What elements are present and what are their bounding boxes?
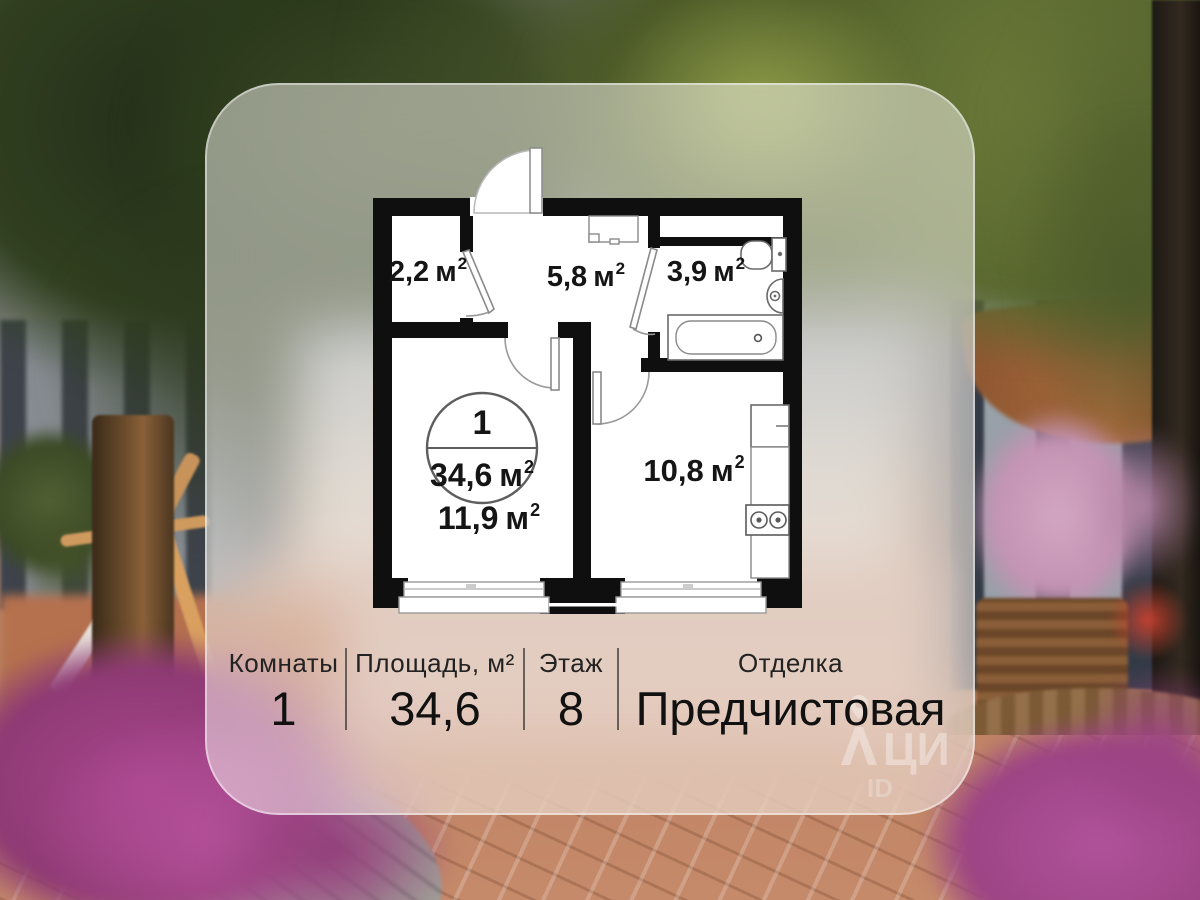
room-area-label-living-room: 11,9м2 [438, 500, 540, 536]
info-value: 1 [270, 681, 296, 737]
info-column-area: Площадь, м² 34,6 [347, 642, 523, 738]
stove-icon [746, 505, 789, 535]
watermark-id-label: ID [867, 773, 893, 803]
badge-total-area: 34,6м2 [430, 457, 534, 493]
info-value: Предчистовая [636, 681, 946, 737]
window-kitchen [616, 582, 766, 613]
bathtub-icon [668, 315, 783, 360]
entrance-door-arc [474, 148, 542, 213]
info-column-rooms: Комнаты 1 [222, 642, 345, 738]
info-value: 34,6 [389, 681, 480, 737]
apartment-info-bar: Комнаты 1 Площадь, м² 34,6 Этаж 8 Отделк… [222, 642, 962, 738]
total-area-badge: 1 34,6м2 [427, 393, 537, 503]
info-column-floor: Этаж 8 [525, 642, 617, 738]
window-living-room [399, 582, 549, 613]
info-label: Площадь, м² [355, 646, 515, 680]
wardrobe-icon [589, 216, 638, 244]
listing-image: ЦИ ID [0, 0, 1200, 900]
info-label: Отделка [738, 646, 843, 680]
toilet-icon [741, 238, 786, 271]
room-area-label-kitchen: 10,8м2 [643, 452, 744, 488]
room-area-label-hallway: 5,8м2 [547, 259, 625, 293]
floor-plan: 1 34,6м2 2,2м2 5,8м2 3,9м2 10,8м2 11,9м2 [360, 130, 820, 630]
info-label: Этаж [539, 646, 603, 680]
balcony-threshold [549, 603, 617, 607]
fridge-icon [751, 405, 789, 447]
red-playground-equipment [1108, 580, 1188, 660]
room-area-label-bathroom: 3,9м2 [667, 254, 745, 288]
blossom-tree [1085, 425, 1200, 585]
info-column-finish: Отделка Предчистовая [619, 642, 962, 738]
info-label: Комнаты [229, 646, 339, 680]
room-area-label-storage: 2,2м2 [389, 254, 467, 288]
badge-rooms-count: 1 [473, 404, 492, 442]
info-value: 8 [558, 681, 584, 737]
